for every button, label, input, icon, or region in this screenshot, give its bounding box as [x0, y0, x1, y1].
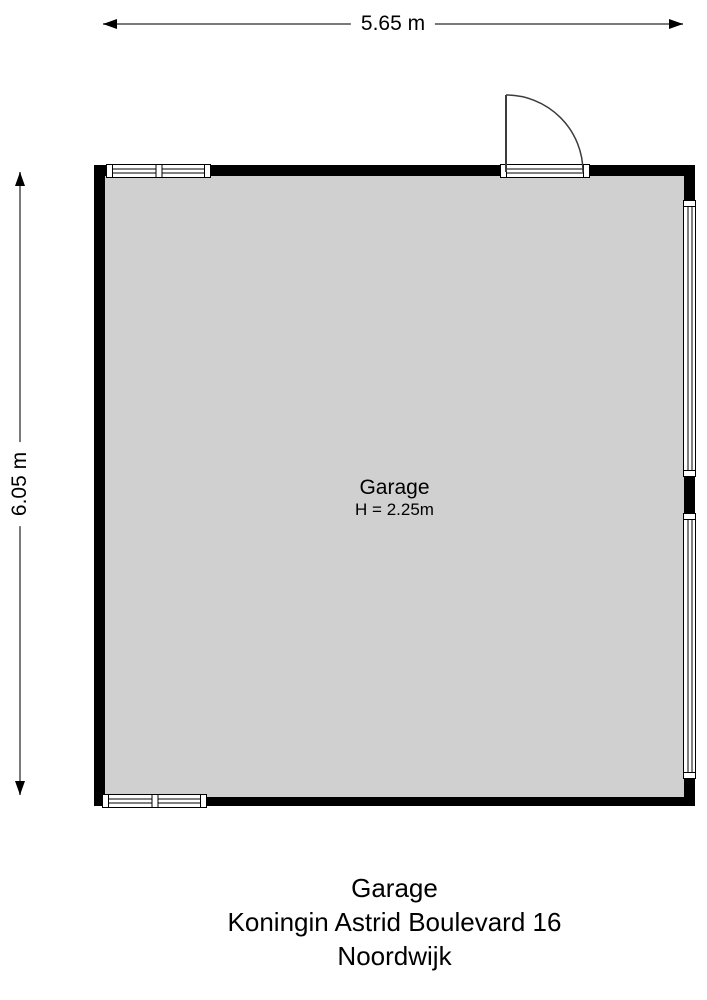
window-right-lower — [683, 513, 696, 779]
window-mullion — [151, 795, 158, 807]
window-right-upper — [683, 200, 696, 477]
window-frame-post — [200, 795, 201, 807]
window-glass — [687, 520, 692, 772]
window-bottom — [102, 794, 207, 808]
arrow-down-icon — [15, 781, 25, 795]
window-mullion — [155, 165, 162, 177]
window-frame-post — [684, 470, 695, 471]
room-height-label: H = 2.25m — [105, 500, 684, 520]
room-name: Garage — [105, 476, 684, 499]
window-top — [106, 164, 211, 178]
floor-plan-page: 5.65 m 6.05 m Garage — [0, 0, 707, 1000]
caption-address: Koningin Astrid Boulevard 16 — [94, 905, 695, 939]
window-frame-post — [684, 772, 695, 773]
caption-city: Noordwijk — [94, 939, 695, 973]
height-dimension-label: 6.05 m — [8, 442, 32, 526]
arrow-left-icon — [103, 19, 117, 29]
room-label: Garage H = 2.25m — [105, 476, 684, 520]
caption-title: Garage — [94, 871, 695, 905]
arrow-up-icon — [15, 172, 25, 186]
caption: Garage Koningin Astrid Boulevard 16 Noor… — [94, 871, 695, 973]
window-glass — [687, 207, 692, 470]
width-dimension-label: 5.65 m — [351, 12, 435, 36]
window-frame-post — [204, 165, 205, 177]
arrow-right-icon — [669, 19, 683, 29]
door-swing-icon — [499, 89, 591, 177]
